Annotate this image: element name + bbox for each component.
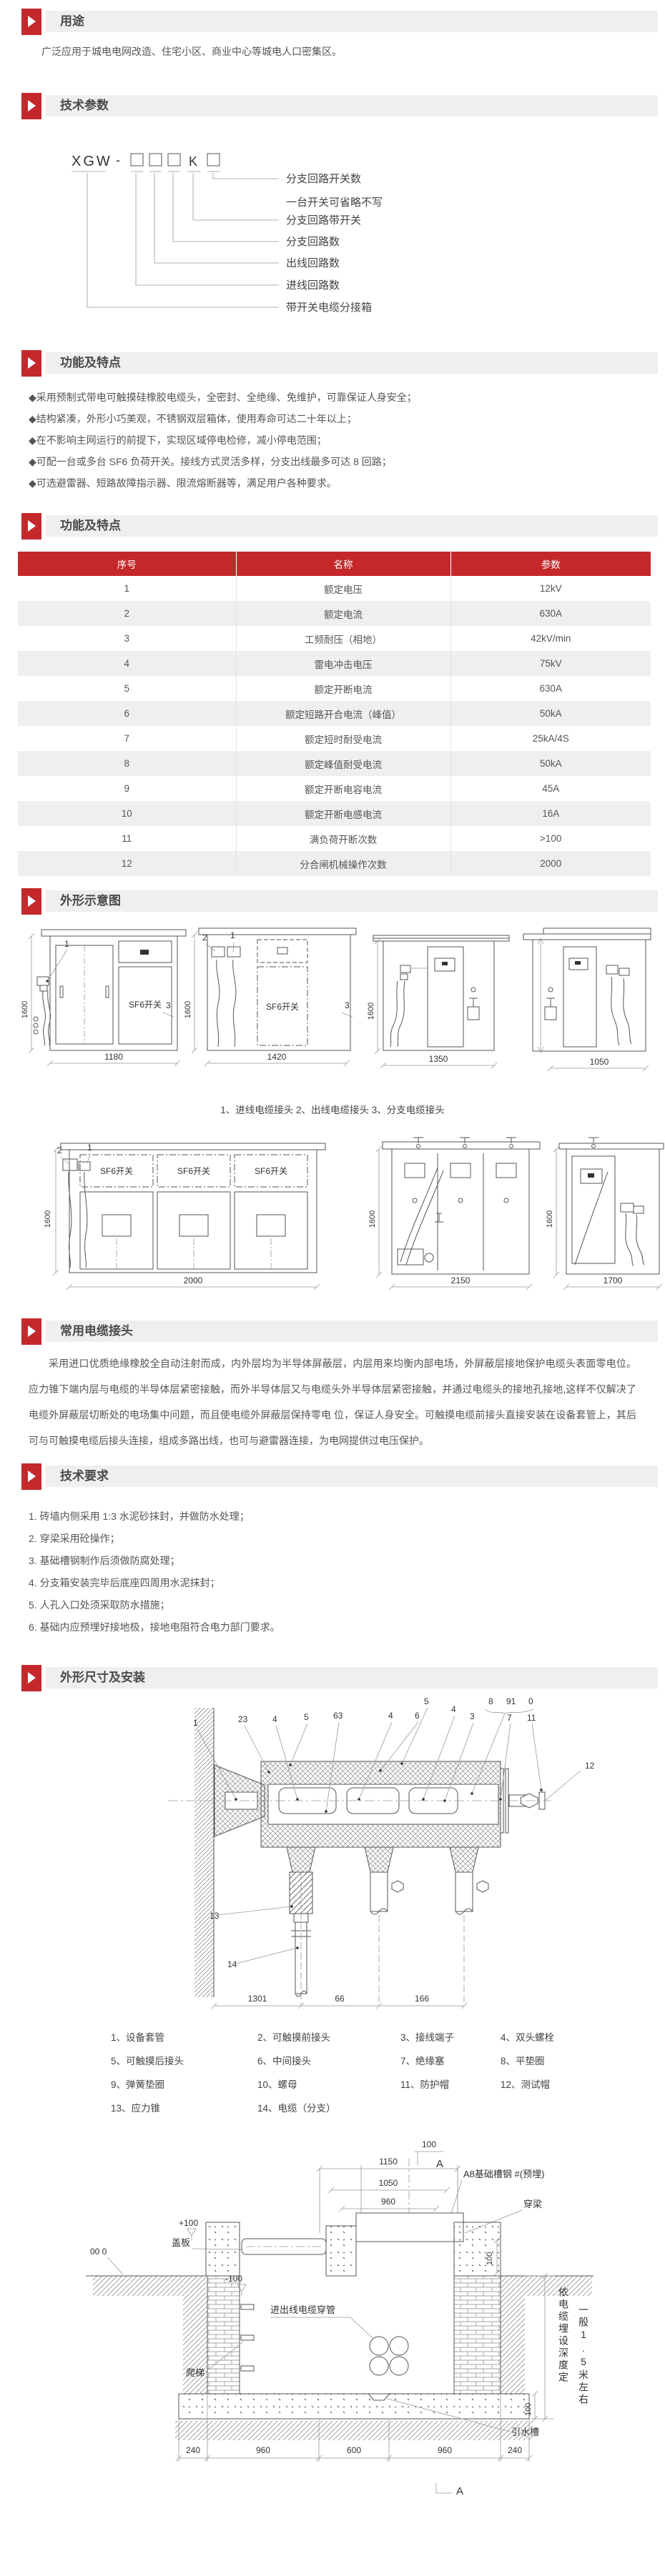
callout: 1: [230, 930, 235, 940]
dim: 66: [335, 1994, 345, 2004]
feature-bullet: ◆可选避雷器、短路故障指示器、限流熔断器等，满足用户各种要求。: [29, 476, 636, 490]
legend-item: 6、中间接头: [257, 2053, 400, 2067]
section-header-features: 功能及特点: [21, 350, 658, 377]
legend-item: 1、设备套管: [111, 2029, 257, 2044]
cell: >100: [450, 826, 651, 851]
cell: 75kV: [450, 651, 651, 676]
cell: 雷电冲击电压: [236, 651, 450, 676]
cell: 50kA: [450, 751, 651, 776]
dim: 166: [415, 1994, 429, 2004]
callout: 1: [193, 1718, 198, 1728]
dim-width: 1050: [590, 1057, 609, 1067]
dim-height: 1600: [546, 1210, 554, 1228]
dim-height: 1600: [44, 1210, 52, 1228]
model-label: 带开关电缆分接箱: [286, 302, 372, 314]
dim-height: 1600: [367, 1003, 375, 1020]
section-marker: A: [456, 2485, 463, 2497]
section-arrow-icon: [21, 350, 41, 377]
section-arrow-icon: [21, 1463, 41, 1490]
cell: 3: [18, 626, 236, 651]
dim-width: 1350: [429, 1054, 448, 1064]
cell: 额定峰值耐受电流: [236, 751, 450, 776]
connector-section-figure: 1 23 4 5 63 4 6 5 4 3 8 91 0 7: [0, 1694, 665, 2019]
section-header-tech-req: 技术要求: [21, 1463, 658, 1491]
dim-height: 1600: [184, 1001, 192, 1018]
feature-bullet: ◆采用预制式带电可触摸硅橡胶电缆头，全密封、全绝缘、免维护，可靠保证人身安全；: [29, 390, 636, 404]
dim-width: 1180: [104, 1052, 123, 1062]
dim: 1301: [248, 1994, 267, 2004]
sf6-label: SF6开关: [255, 1166, 287, 1176]
cell: 5: [18, 676, 236, 701]
legend-item: 14、电缆（分支）: [257, 2100, 400, 2114]
dim: 1150: [379, 2157, 398, 2167]
callout: 7: [507, 1713, 512, 1723]
dim: 100: [422, 2139, 436, 2149]
dim: 240: [508, 2445, 522, 2455]
section-title: 技术要求: [46, 1466, 109, 1487]
cell: 12: [18, 851, 236, 876]
table-row: 11满负荷开断次数>100: [18, 826, 651, 851]
model-label: 出线回路数: [286, 257, 340, 269]
callout: 4: [451, 1704, 456, 1714]
cell: 42kV/min: [450, 626, 651, 651]
parameters-table: 序号 名称 参数 1额定电压12kV 2额定电流630A 3工频耐压（相地）42…: [18, 552, 651, 876]
table-row: 4雷电冲击电压75kV: [18, 651, 651, 676]
callout: 8: [488, 1696, 493, 1706]
dim-width: 2150: [451, 1275, 471, 1285]
section-header-outline: 外形示意图: [21, 888, 658, 915]
section-marker: A: [436, 2158, 443, 2170]
callout: 13: [210, 1911, 220, 1921]
dim: 960: [256, 2445, 270, 2455]
callout: 4: [388, 1711, 393, 1721]
tech-req-item: 1. 砖墙内侧采用 1:3 水泥砂抹封，并做防水处理；: [29, 1509, 636, 1523]
table-header-row: 序号 名称 参数: [18, 552, 651, 576]
callout: 5: [424, 1696, 429, 1706]
legend-item: 8、平垫圈: [501, 2053, 626, 2067]
dim-width: 2000: [184, 1275, 203, 1285]
legend-item: 10、螺母: [257, 2077, 400, 2091]
tech-req-item: 4. 分支箱安装完毕后底座四周用水泥抹封；: [29, 1576, 636, 1590]
cell: 额定开断电感电流: [236, 801, 450, 826]
depth-note-line1: 依电缆埋设深度定: [556, 2287, 571, 2384]
legend-item: 13、应力锥: [111, 2100, 257, 2114]
foundation-figure: 100 A 1150 1050 960 A8基础槽钢 #(预埋) 穿梁 盖板 1…: [0, 2133, 665, 2562]
model-dash: -: [116, 153, 120, 167]
purpose-text: 广泛应用于城电电网改造、住宅小区、商业中心等城电人口密集区。: [41, 44, 642, 59]
callout: 23: [238, 1714, 248, 1724]
cell: 额定电流: [236, 601, 450, 626]
cell: 8: [18, 751, 236, 776]
feature-bullet: ◆结构紧凑，外形小巧美观，不锈钢双层箱体，使用寿命可达二十年以上；: [29, 412, 636, 426]
legend-item: 11、防护帽: [400, 2077, 501, 2091]
section-title: 技术参数: [46, 95, 109, 116]
table-row: 5额定开断电流630A: [18, 676, 651, 701]
conduit-label: 进出线电缆穿管: [270, 2304, 335, 2315]
section-title: 用途: [46, 11, 84, 32]
section-header-cable-joint: 常用电缆接头: [21, 1318, 658, 1346]
sf6-label: SF6开关: [100, 1166, 133, 1176]
legend-item: 5、可触摸后接头: [111, 2053, 257, 2067]
cell: 满负荷开断次数: [236, 826, 450, 851]
legend-item: 3、接线端子: [400, 2029, 501, 2044]
cell: 分合闸机械操作次数: [236, 851, 450, 876]
model-label: 一台开关可省略不写: [286, 197, 383, 209]
outline-figure-row2: SF6开关 SF6开关 SF6开关 2 1 1600 2000: [0, 1135, 665, 1310]
dim: 960: [438, 2445, 452, 2455]
model-label: 分支回路数: [286, 236, 340, 248]
cell: 额定电压: [236, 576, 450, 601]
cell: 额定开断电流: [236, 676, 450, 701]
section-title: 常用电缆接头: [46, 1321, 133, 1342]
section-arrow-icon: [21, 513, 41, 539]
catalog-page: 用途 广泛应用于城电电网改造、住宅小区、商业中心等城电人口密集区。 技术参数 X…: [0, 0, 665, 2576]
cell: 4: [18, 651, 236, 676]
table-row: 8额定峰值耐受电流50kA: [18, 751, 651, 776]
section-arrow-icon: [21, 888, 41, 915]
legend-item: 2、可触摸前接头: [257, 2029, 400, 2044]
dim: 1050: [379, 2178, 398, 2188]
model-designation-diagram: XGW - K 分支回路开关数 一台开关可省略不写 分支回路带开关 分支回路数 …: [0, 143, 665, 322]
callout: 2: [57, 1145, 62, 1155]
cell: 1: [18, 576, 236, 601]
cell: 额定开断电容电流: [236, 776, 450, 801]
model-designation-figure: XGW - K 分支回路开关数 一台开关可省略不写 分支回路带开关 分支回路数 …: [0, 143, 665, 325]
dim-height: 1600: [368, 1210, 377, 1228]
callout: 3: [470, 1711, 475, 1721]
model-label: 分支回路开关数: [286, 173, 361, 185]
model-k: K: [189, 154, 197, 169]
dim: 600: [347, 2445, 361, 2455]
legend-item: 4、双头螺栓: [501, 2029, 626, 2044]
depth-note-line2: 一般1.5米左右: [576, 2304, 591, 2406]
level-mark: 00 0: [90, 2247, 107, 2257]
section-arrow-icon: [21, 9, 41, 35]
tech-req-item: 6. 基础内应预埋好接地极，接地电阻符合电力部门要求。: [29, 1620, 636, 1634]
cell: 630A: [450, 601, 651, 626]
dim-height: 1600: [21, 1001, 29, 1018]
section-title: 外形示意图: [46, 890, 121, 912]
callout: 63: [333, 1711, 343, 1721]
section-arrow-icon: [21, 1665, 41, 1691]
model-label: 分支回路带开关: [286, 214, 361, 227]
callout: 3: [345, 1000, 350, 1010]
tech-req-item: 5. 人孔入口处须采取防水措施；: [29, 1598, 636, 1612]
section-arrow-icon: [21, 1318, 41, 1345]
callout: 6: [415, 1711, 420, 1721]
callout: 4: [272, 1714, 277, 1724]
dim: 100: [524, 2403, 533, 2416]
callout: 5: [304, 1712, 309, 1722]
table-row: 1额定电压12kV: [18, 576, 651, 601]
legend-item: 9、弹簧垫圈: [111, 2077, 257, 2091]
cell: 16A: [450, 801, 651, 826]
model-label: 进线回路数: [286, 279, 340, 292]
tech-req-item: 3. 基础槽钢制作后须做防腐处理；: [29, 1553, 636, 1568]
sf6-label: SF6开关: [177, 1166, 210, 1176]
col-header: 参数: [450, 552, 651, 576]
beam-label: 穿梁: [523, 2199, 542, 2209]
cable-joint-paragraph: 采用进口优质绝缘橡胶全自动注射而成，内外层均为半导体屏蔽层，内层用来均衡内部电场…: [29, 1351, 636, 1453]
dim: 240: [186, 2445, 200, 2455]
callout: 0: [528, 1696, 533, 1706]
callout: 12: [585, 1761, 595, 1771]
section-header-install: 外形尺寸及安装: [21, 1665, 658, 1692]
section-title: 外形尺寸及安装: [46, 1667, 145, 1689]
cell: 工频耐压（相地）: [236, 626, 450, 651]
ladder-label: 爬梯: [186, 2367, 205, 2378]
section-title: 功能及特点: [46, 515, 121, 537]
legend-item: 12、测试帽: [501, 2077, 626, 2091]
dim-width: 1420: [267, 1052, 287, 1062]
callout: 2: [202, 933, 207, 943]
cell: 额定短路开合电流（峰值）: [236, 701, 450, 726]
callout: 91: [506, 1696, 516, 1706]
legend-item: 7、绝缘塞: [400, 2053, 501, 2067]
cell: 2: [18, 601, 236, 626]
feature-bullet: ◆在不影响主网运行的前提下，实现区域停电检修，减小停电范围；: [29, 433, 636, 447]
cell: 2000: [450, 851, 651, 876]
tech-req-item: 2. 穿梁采用砼操作；: [29, 1531, 636, 1546]
section-title: 功能及特点: [46, 352, 121, 374]
outline-caption: 1、进线电缆接头 2、出线电缆接头 3、分支电缆接头: [0, 1102, 665, 1116]
cell: 额定短时耐受电流: [236, 726, 450, 751]
callout: 1: [87, 1143, 92, 1153]
cell: 11: [18, 826, 236, 851]
callout: 3: [166, 1000, 171, 1010]
callout: 11: [527, 1713, 536, 1723]
outline-drawing-row2: SF6开关 SF6开关 SF6开关 2 1 1600 2000: [0, 1135, 665, 1306]
table-row: 12分合闸机械操作次数2000: [18, 851, 651, 876]
cell: 9: [18, 776, 236, 801]
cell: 45A: [450, 776, 651, 801]
callout: 1: [64, 939, 69, 949]
connector-legend: 1、设备套管 2、可触摸前接头 3、接线端子 4、双头螺栓 5、可触摸后接头 6…: [111, 2029, 626, 2114]
section-header-tech-params: 技术参数: [21, 93, 658, 120]
level-mark: +100: [179, 2218, 198, 2228]
channel-steel-label: A8基础槽钢 #(预埋): [463, 2169, 544, 2179]
table-row: 9额定开断电容电流45A: [18, 776, 651, 801]
table-row: 3工频耐压（相地）42kV/min: [18, 626, 651, 651]
table-row: 2额定电流630A: [18, 601, 651, 626]
cell: 6: [18, 701, 236, 726]
col-header: 名称: [236, 552, 450, 576]
outline-drawing-row1: SF6开关 1 3 1600 1180 2 1 SF6开关: [0, 918, 665, 1093]
callout: 14: [227, 1959, 237, 1969]
sf6-label: SF6开关: [266, 1002, 299, 1012]
cell: 12kV: [450, 576, 651, 601]
table-row: 7额定短时耐受电流25kA/4S: [18, 726, 651, 751]
outline-figure-row1: SF6开关 1 3 1600 1180 2 1 SF6开关: [0, 918, 665, 1097]
cell: 630A: [450, 676, 651, 701]
cell: 7: [18, 726, 236, 751]
table-row: 6额定短路开合电流（峰值）50kA: [18, 701, 651, 726]
model-prefix: XGW: [72, 154, 112, 169]
dim-width: 1700: [604, 1275, 623, 1285]
section-arrow-icon: [21, 93, 41, 119]
cover-plate-label: 盖板: [172, 2237, 190, 2248]
connector-cross-section: 1 23 4 5 63 4 6 5 4 3 8 91 0 7: [0, 1694, 665, 2015]
dim: 960: [381, 2197, 395, 2207]
cell: 50kA: [450, 701, 651, 726]
sf6-label: SF6开关: [129, 1000, 162, 1010]
section-header-purpose: 用途: [21, 9, 658, 36]
col-header: 序号: [18, 552, 236, 576]
cell: 10: [18, 801, 236, 826]
section-header-params-table: 功能及特点: [21, 513, 658, 540]
feature-bullet: ◆可配一台或多台 SF6 负荷开关。接线方式灵活多样，分支出线最多可达 8 回路…: [29, 454, 636, 469]
cell: 25kA/4S: [450, 726, 651, 751]
table-row: 10额定开断电感电流16A: [18, 801, 651, 826]
